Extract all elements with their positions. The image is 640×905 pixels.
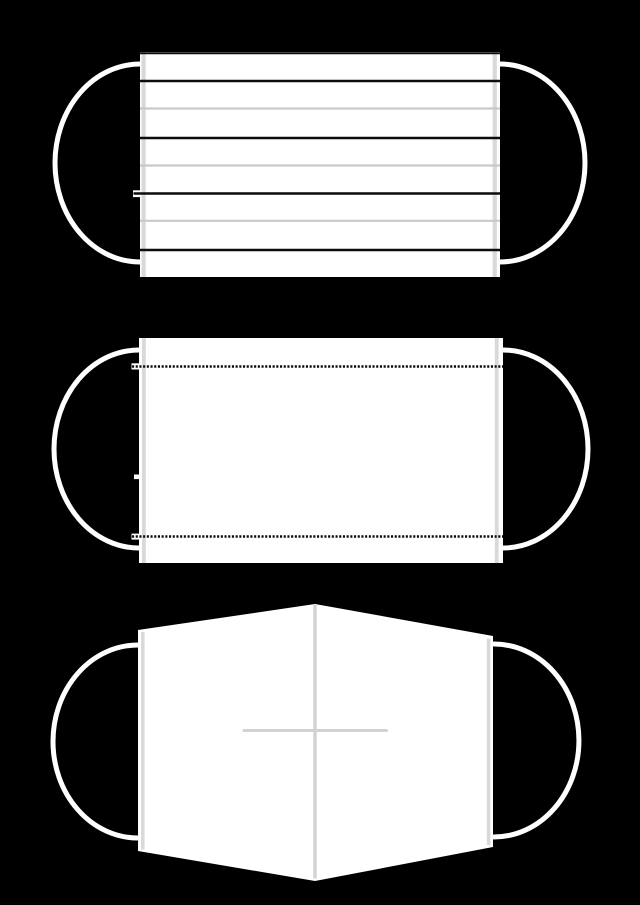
- mask-diagram-canvas: [0, 0, 640, 905]
- left-edge-tick: [134, 475, 139, 480]
- mask-body: [139, 338, 503, 563]
- left-ear-loop: [54, 350, 139, 548]
- right-ear-loop: [500, 64, 585, 262]
- left-ear-loop: [53, 645, 138, 838]
- left-edge-strip: [142, 338, 146, 563]
- plain-mask-back: [54, 338, 588, 563]
- right-ear-loop: [494, 644, 579, 837]
- right-ear-loop: [503, 350, 588, 548]
- face-mask-illustrations: [0, 0, 640, 905]
- pleated-mask-front: [55, 52, 585, 277]
- right-edge-strip: [495, 338, 499, 563]
- flat-fold-mask: [53, 604, 579, 881]
- left-ear-loop: [55, 64, 140, 262]
